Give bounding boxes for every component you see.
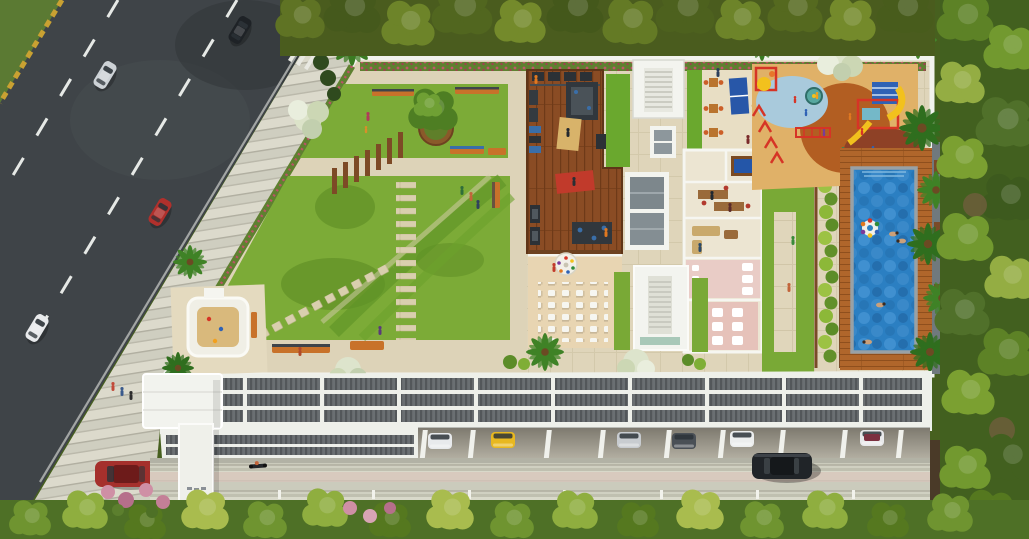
- pedestrian: [129, 391, 132, 400]
- parked-car-silver: [617, 432, 641, 448]
- skylight-pair: [625, 172, 669, 250]
- white-chair-grid: [538, 282, 608, 342]
- patio-edge: [528, 254, 622, 257]
- person: [469, 192, 472, 201]
- louver-row: [166, 410, 926, 422]
- grass-patch: [614, 272, 630, 350]
- black-sedan-moving: [752, 453, 821, 483]
- louver-row: [166, 394, 926, 406]
- person: [534, 75, 537, 84]
- buffet-table: [555, 253, 577, 275]
- right-trees: [934, 0, 1029, 539]
- louver-row: [166, 378, 926, 390]
- person: [746, 135, 749, 144]
- person-on-mat: [572, 177, 575, 186]
- person: [366, 112, 369, 121]
- person: [698, 243, 701, 252]
- grass-patch: [692, 278, 708, 352]
- table-tennis-1: [729, 77, 749, 114]
- scene-canvas: [0, 0, 1029, 539]
- person: [710, 191, 713, 200]
- maroon-roof: [864, 434, 880, 441]
- stair-core: [633, 60, 684, 118]
- person: [460, 186, 463, 195]
- person: [787, 283, 790, 292]
- person: [476, 200, 479, 209]
- bench: [251, 312, 257, 338]
- frosted-skylight: [640, 337, 680, 345]
- person: [298, 347, 301, 356]
- aerial-render: [0, 0, 1029, 539]
- pedestrian: [111, 382, 114, 391]
- billiards-room: [731, 156, 755, 176]
- central-tree-highlight: [414, 93, 443, 117]
- parked-car-graphite: [672, 433, 696, 449]
- merry-go-round: [806, 88, 822, 104]
- facade-shadow: [150, 458, 935, 463]
- pedestrian: [120, 387, 123, 396]
- grass-strip: [606, 74, 630, 167]
- parking-row: [418, 428, 930, 460]
- person: [604, 228, 607, 237]
- lawn-path: [774, 212, 796, 352]
- stepping-stone-path: [396, 180, 416, 340]
- person: [552, 263, 555, 272]
- deck-fence: [528, 250, 621, 254]
- person: [716, 68, 719, 77]
- palm-tree: [899, 105, 945, 151]
- person-exercising: [566, 128, 569, 137]
- person: [728, 203, 731, 212]
- parked-car-yellow: [491, 432, 515, 448]
- parked-car-white: [428, 433, 452, 449]
- stair-flight: [648, 276, 672, 334]
- skylight-small: [650, 126, 676, 158]
- parked-car-white: [730, 431, 754, 447]
- child: [365, 126, 368, 133]
- lawn-shade-circle: [315, 185, 375, 229]
- stairwell-block: [614, 266, 708, 352]
- palm-tree: [173, 245, 207, 279]
- sandpit-canopy: [204, 288, 224, 298]
- entrance-roof-shadow: [213, 380, 220, 428]
- person: [378, 326, 381, 335]
- top-trees: [275, 0, 935, 56]
- swimming-pool: [852, 168, 916, 352]
- entrance-roof: [143, 374, 222, 428]
- person: [791, 236, 794, 245]
- palm-tree: [526, 333, 564, 371]
